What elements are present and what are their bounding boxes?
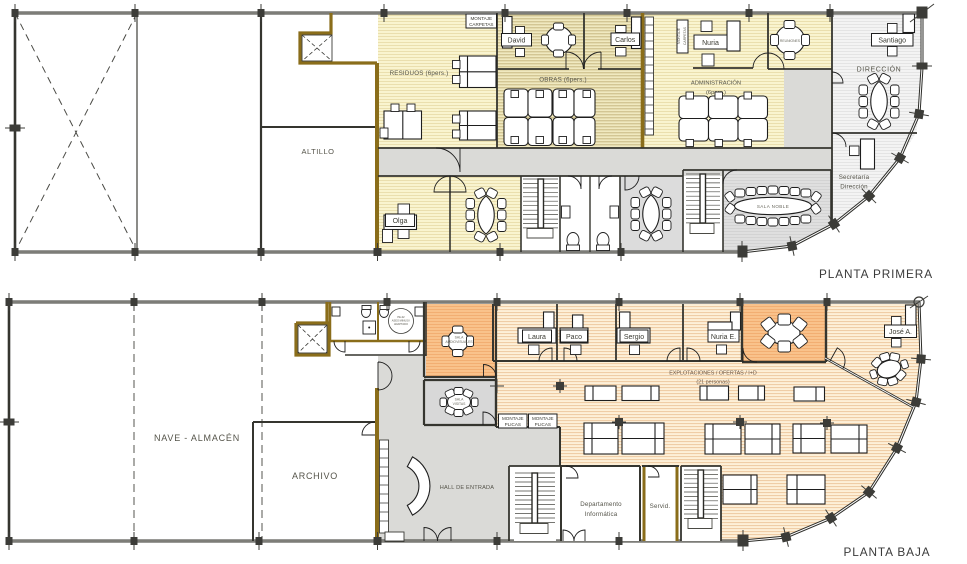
svg-text:Nuria: Nuria <box>702 40 719 47</box>
svg-text:ALTILLO: ALTILLO <box>302 147 335 156</box>
svg-text:MONTAJE: MONTAJE <box>502 416 524 421</box>
svg-text:Secretaría: Secretaría <box>839 174 870 181</box>
svg-text:DIRECCIÓN: DIRECCIÓN <box>857 65 902 74</box>
svg-text:Dirección: Dirección <box>840 184 868 191</box>
svg-text:MONTAJE: MONTAJE <box>532 416 554 421</box>
svg-text:SALA: SALA <box>455 336 464 340</box>
svg-text:Servid.: Servid. <box>650 503 671 510</box>
svg-text:Laura: Laura <box>528 334 546 341</box>
svg-text:RESIDUOS (6pers.): RESIDUOS (6pers.) <box>390 70 449 77</box>
svg-text:PE-02: PE-02 <box>397 315 405 319</box>
svg-text:HALL DE ENTRADA: HALL DE ENTRADA <box>440 485 494 491</box>
svg-text:José A.: José A. <box>889 329 912 336</box>
svg-text:ARCHIVO: ARCHIVO <box>292 471 338 481</box>
svg-text:CARPETAS: CARPETAS <box>469 22 493 27</box>
svg-text:Nuria E.: Nuria E. <box>711 334 736 341</box>
svg-text:CARPETAS: CARPETAS <box>683 26 687 45</box>
svg-text:Sergio: Sergio <box>624 334 644 341</box>
svg-text:SALA NOBLE: SALA NOBLE <box>757 204 789 209</box>
svg-text:ADMINISTRACIÓN: ADMINISTRACIÓN <box>691 80 741 87</box>
svg-text:SALA: SALA <box>455 398 464 402</box>
svg-text:ASEO MINUSV.: ASEO MINUSV. <box>392 319 411 323</box>
svg-text:EXPLOTACIONES / OFERTAS / I+D: EXPLOTACIONES / OFERTAS / I+D <box>669 371 757 377</box>
svg-text:VISITAS: VISITAS <box>453 402 466 406</box>
svg-text:MONTAJE: MONTAJE <box>677 27 681 44</box>
svg-text:PLANTA BAJA: PLANTA BAJA <box>843 545 930 559</box>
svg-text:OBRAS (6pers.): OBRAS (6pers.) <box>539 77 587 84</box>
svg-text:Informática: Informática <box>585 511 618 518</box>
svg-text:Departamento: Departamento <box>580 501 622 508</box>
svg-text:PLICAS: PLICAS <box>535 422 551 427</box>
svg-text:Olga: Olga <box>393 218 408 225</box>
svg-text:AUDIOVISUALES: AUDIOVISUALES <box>445 340 473 344</box>
svg-text:Paco: Paco <box>566 334 582 341</box>
svg-text:ADAPTADO: ADAPTADO <box>394 322 408 326</box>
svg-text:(21 personas): (21 personas) <box>696 380 729 386</box>
svg-text:PLANTA PRIMERA: PLANTA PRIMERA <box>819 267 933 281</box>
svg-text:PLICAS: PLICAS <box>505 422 521 427</box>
svg-text:REUNIONES: REUNIONES <box>780 39 801 43</box>
svg-text:NAVE - ALMACÉN: NAVE - ALMACÉN <box>154 433 240 443</box>
svg-text:Carlos: Carlos <box>615 37 636 44</box>
svg-text:David: David <box>508 38 526 45</box>
svg-text:MONTAJE: MONTAJE <box>470 16 492 21</box>
svg-text:Santiago: Santiago <box>878 38 906 45</box>
